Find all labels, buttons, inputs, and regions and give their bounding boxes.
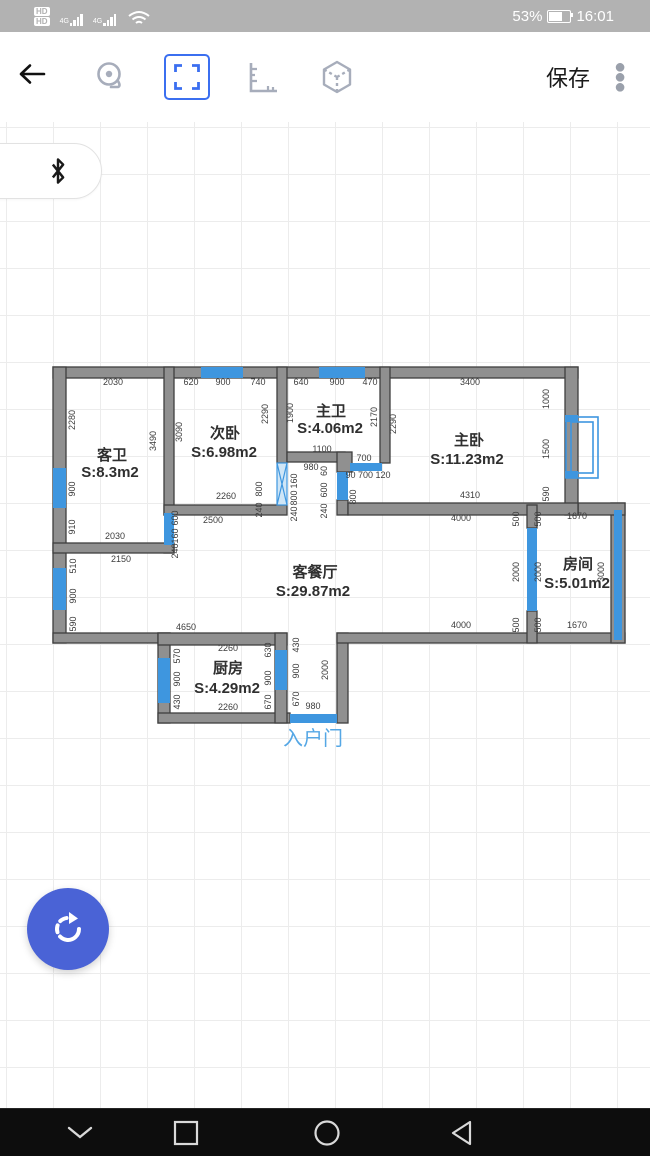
- hd-icons: HD HD: [34, 7, 50, 26]
- window: [158, 658, 170, 703]
- toolbar: 保存 ●●●: [0, 32, 650, 122]
- measure-tape-icon: [93, 59, 129, 95]
- recents-button[interactable]: [151, 1109, 221, 1156]
- home-button[interactable]: [292, 1109, 362, 1156]
- wall: [164, 505, 287, 515]
- chevron-down-icon: [67, 1126, 93, 1140]
- dimension-label: 240: [289, 506, 299, 521]
- room-name: 房间: [563, 555, 593, 573]
- window: [275, 650, 287, 690]
- dimension-label: 500: [511, 617, 521, 632]
- window: [53, 568, 66, 610]
- dimension-label: 700: [356, 453, 371, 463]
- room-area: S:5.01m2: [544, 575, 610, 592]
- dimension-label: 500: [533, 617, 543, 632]
- rotate-fab-button[interactable]: [27, 888, 109, 970]
- dimension-label: 2030: [103, 377, 123, 387]
- room-name: 主卫: [316, 402, 346, 420]
- dimension-label: 3400: [460, 377, 480, 387]
- status-bar: HD HD 4G 4G 53% 16:01: [0, 0, 650, 32]
- wall: [337, 500, 348, 515]
- signal-icon: 4G: [60, 14, 83, 26]
- dimension-label: 1670: [567, 511, 587, 521]
- dimension-label: 90 700 120: [345, 470, 390, 480]
- navigation-bar: [0, 1108, 650, 1156]
- room-area: S:4.29m2: [194, 680, 260, 697]
- wall: [337, 633, 625, 643]
- dimension-label: 160: [170, 528, 180, 543]
- frame-select-icon: [174, 64, 200, 90]
- dimension-label: 900: [215, 377, 230, 387]
- wall: [53, 543, 174, 553]
- dimension-label: 240: [170, 543, 180, 558]
- dimension-label: 630: [263, 642, 273, 657]
- dimension-label: 2290: [260, 404, 270, 424]
- dimension-label: 240: [319, 503, 329, 518]
- room-area: S:4.06m2: [297, 420, 363, 437]
- dimension-label: 600: [170, 510, 180, 525]
- android-back-button[interactable]: [427, 1109, 497, 1156]
- measure-tape-button[interactable]: [90, 56, 132, 98]
- circle-home-icon: [313, 1119, 341, 1147]
- room-name: 次卧: [210, 424, 240, 442]
- dimension-label: 980: [305, 701, 320, 711]
- dimension-label: 2170: [369, 407, 379, 427]
- dimension-label: 2290: [388, 414, 398, 434]
- wall: [337, 633, 348, 723]
- dimension-label: 590: [68, 616, 78, 631]
- dimension-label: 2150: [111, 554, 131, 564]
- dimension-label: 570: [172, 648, 182, 663]
- dimension-label: 2000: [533, 562, 543, 582]
- battery-percent: 53%: [512, 8, 542, 25]
- save-button[interactable]: 保存: [546, 61, 590, 93]
- dimension-label: 3490: [148, 431, 158, 451]
- window: [290, 714, 337, 723]
- dimension-label: 900: [68, 588, 78, 603]
- wall: [158, 713, 290, 723]
- window: [565, 415, 578, 422]
- dimension-label: 2280: [67, 410, 77, 430]
- floor-plan: 2030620900740640900470340010001500590228…: [0, 122, 650, 1108]
- dimension-label: 4310: [460, 490, 480, 500]
- dimension-label: 620: [183, 377, 198, 387]
- signal-icon-2: 4G: [93, 14, 116, 26]
- clock: 16:01: [576, 8, 614, 25]
- dimension-label: 2000: [320, 660, 330, 680]
- dimension-label: 800: [289, 490, 299, 505]
- battery-icon: [547, 10, 571, 23]
- dimension-label: 1900: [285, 403, 295, 423]
- square-recents-icon: [173, 1120, 199, 1146]
- rotate-icon: [48, 909, 88, 949]
- room-area: S:6.98m2: [191, 444, 257, 461]
- hd-icon: HD: [34, 17, 50, 26]
- dimension-label: 240: [254, 502, 264, 517]
- hd-icon: HD: [34, 7, 50, 16]
- window: [53, 468, 66, 508]
- dimension-label: 1000: [541, 389, 551, 409]
- dimension-label: 800: [348, 489, 358, 504]
- entrance-door-label: 入户门: [283, 727, 343, 750]
- room-area: S:8.3m2: [81, 464, 139, 481]
- dimension-label: 670: [263, 694, 273, 709]
- wifi-icon: [128, 10, 150, 26]
- room-name: 主卧: [454, 431, 484, 449]
- dimension-label: 910: [67, 519, 77, 534]
- room-name: 客餐厅: [291, 563, 337, 581]
- dimension-label: 1500: [541, 439, 551, 459]
- dimension-label: 430: [291, 637, 301, 652]
- dimension-label: 900: [291, 663, 301, 678]
- dimension-label: 600: [319, 482, 329, 497]
- wall: [53, 633, 170, 643]
- dimension-label: 2260: [216, 491, 236, 501]
- dimension-label: 4650: [176, 622, 196, 632]
- dimension-label: 470: [362, 377, 377, 387]
- dimension-label: 2260: [218, 643, 238, 653]
- room-name: 客卫: [96, 446, 127, 464]
- dimension-label: 2000: [511, 562, 521, 582]
- dimension-label: 900: [263, 670, 273, 685]
- dimension-label: 590: [541, 486, 551, 501]
- back-button[interactable]: [0, 60, 64, 94]
- arrow-left-icon: [17, 62, 47, 86]
- dimension-label: 2500: [203, 515, 223, 525]
- window: [614, 510, 622, 640]
- room-area: S:11.23m2: [430, 451, 503, 468]
- room-area: S:29.87m2: [276, 583, 350, 600]
- ruler-icon: [246, 60, 280, 94]
- dimension-label: 900: [329, 377, 344, 387]
- dimension-label: 1670: [567, 620, 587, 630]
- dimension-label: 510: [68, 558, 78, 573]
- wall: [53, 367, 578, 378]
- dimension-label: 60: [319, 466, 329, 476]
- room-name: 厨房: [213, 659, 243, 677]
- dimension-label: 900: [67, 481, 77, 496]
- dimension-label: 740: [250, 377, 265, 387]
- dimension-label: 900: [172, 671, 182, 686]
- dimension-label: 980: [303, 462, 318, 472]
- dimension-label: 2260: [218, 702, 238, 712]
- dimension-label: 3090: [174, 422, 184, 442]
- floorplan-canvas[interactable]: 2030620900740640900470340010001500590228…: [0, 122, 650, 1108]
- cube-3d-button[interactable]: [316, 56, 358, 98]
- dimension-label: 430: [172, 694, 182, 709]
- triangle-back-icon: [450, 1120, 474, 1146]
- dimension-label: 670: [291, 691, 301, 706]
- hide-nav-button[interactable]: [45, 1109, 115, 1156]
- wall: [164, 367, 174, 515]
- dimension-label: 800: [254, 481, 264, 496]
- dimension-label: 4000: [451, 513, 471, 523]
- dimension-label: 2030: [105, 531, 125, 541]
- wall: [337, 452, 352, 472]
- ruler-button[interactable]: [242, 56, 284, 98]
- dimension-label: 640: [293, 377, 308, 387]
- frame-select-button[interactable]: [164, 54, 210, 100]
- dimension-label: 160: [289, 473, 299, 488]
- dimension-label: 1100: [312, 444, 331, 454]
- dimension-label: 500: [511, 511, 521, 526]
- dimension-label: 500: [533, 511, 543, 526]
- dimension-label: 4000: [451, 620, 471, 630]
- kebab-menu-button[interactable]: ●●●: [590, 61, 650, 94]
- cube-3d-icon: [319, 59, 355, 95]
